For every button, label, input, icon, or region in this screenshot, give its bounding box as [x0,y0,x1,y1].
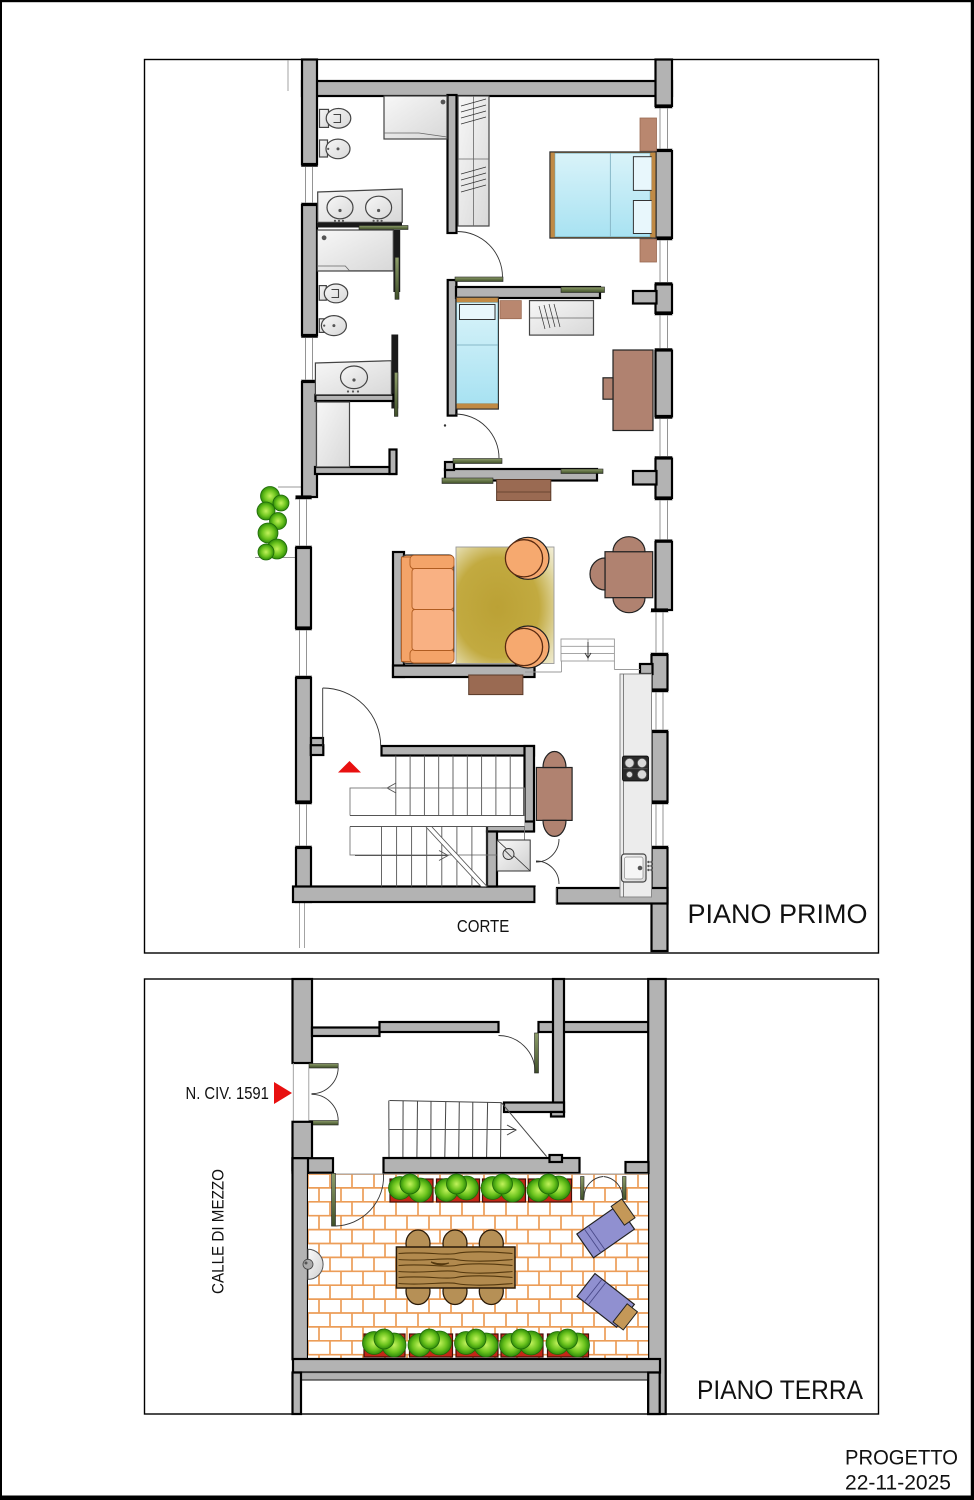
svg-text:CORTE: CORTE [457,916,509,936]
svg-text:PIANO PRIMO: PIANO PRIMO [688,899,868,929]
svg-text:N. CIV. 1591: N. CIV. 1591 [186,1083,269,1103]
svg-text:PROGETTO: PROGETTO [845,1446,958,1470]
svg-text:22-11-2025: 22-11-2025 [845,1471,951,1495]
svg-text:CALLE DI MEZZO: CALLE DI MEZZO [209,1169,228,1294]
svg-text:PIANO TERRA: PIANO TERRA [697,1375,863,1405]
